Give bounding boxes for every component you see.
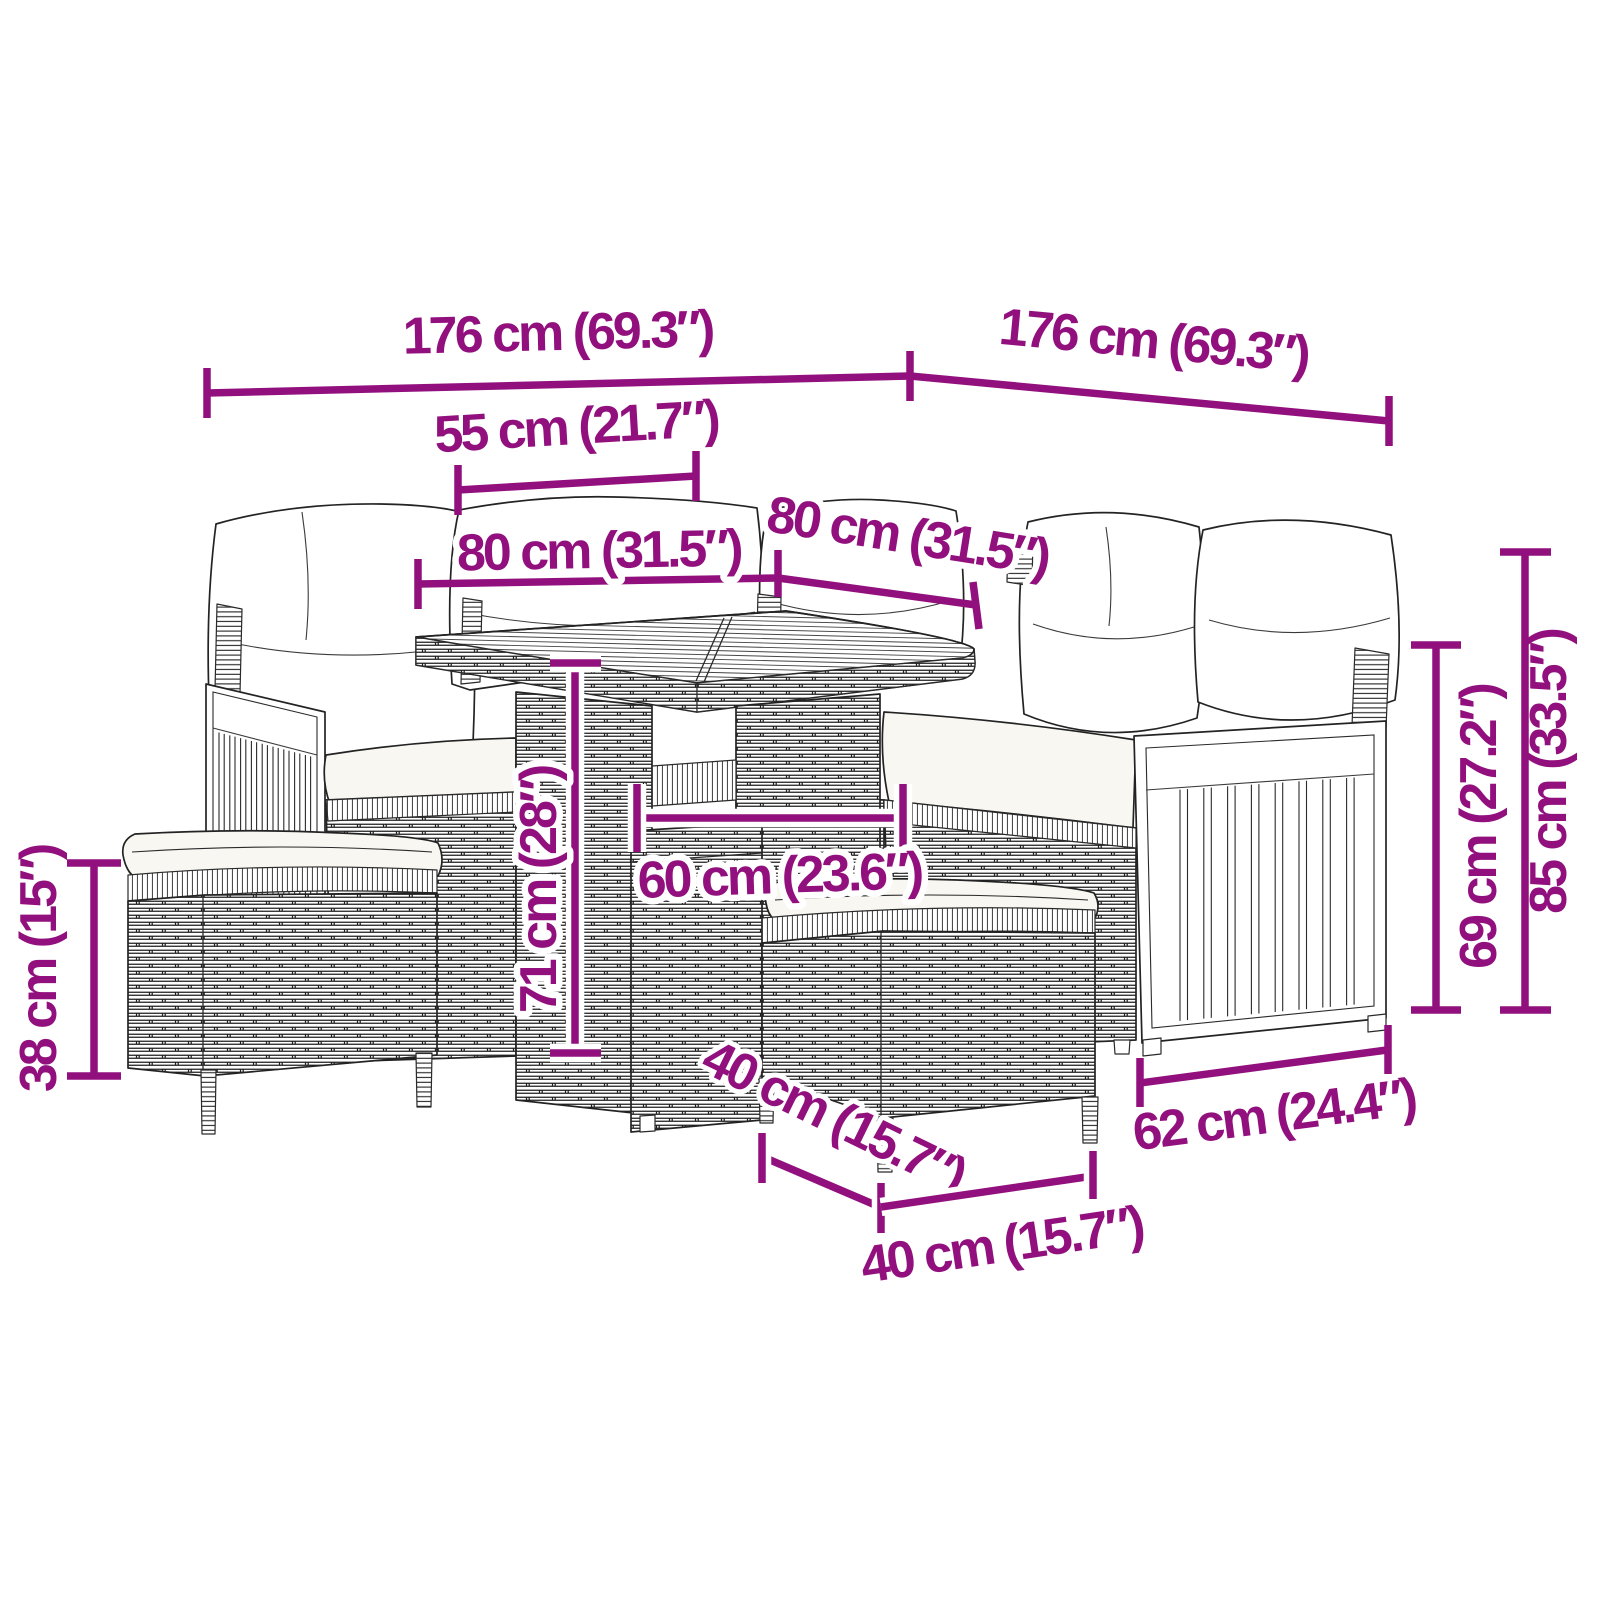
svg-text:60 cm (23.6″): 60 cm (23.6″) [637, 842, 923, 910]
svg-text:69 cm (27.2″): 69 cm (27.2″) [1450, 684, 1508, 968]
svg-text:38 cm (15″): 38 cm (15″) [10, 845, 68, 1092]
svg-text:85 cm (33.5″): 85 cm (33.5″) [1520, 629, 1578, 913]
svg-text:71 cm (28″): 71 cm (28″) [510, 766, 568, 1013]
svg-text:176 cm (69.3″): 176 cm (69.3″) [402, 300, 714, 366]
svg-text:80 cm (31.5″): 80 cm (31.5″) [456, 520, 741, 583]
